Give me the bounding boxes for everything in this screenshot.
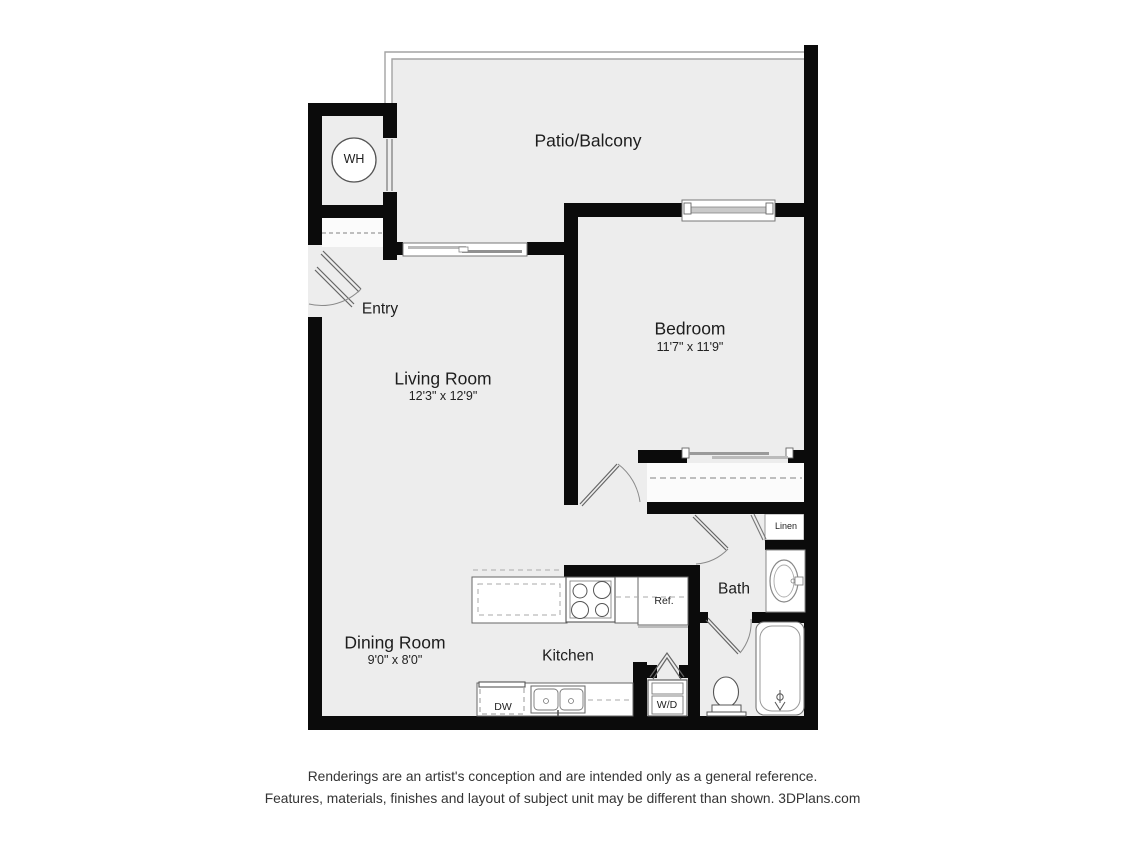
water-heater-label: WH <box>344 153 365 167</box>
dishwasher-label: DW <box>494 702 512 714</box>
bath-label: Bath <box>718 580 750 597</box>
patio-sliding-door <box>403 243 527 256</box>
refrigerator-label: Ref. <box>654 596 673 608</box>
bedroom-window <box>682 200 775 221</box>
disclaimer: Renderings are an artist's conception an… <box>0 766 1125 810</box>
washer-dryer-label: W/D <box>657 700 677 712</box>
bedroom-dims: 11'7" x 11'9" <box>657 341 724 355</box>
floorplan-canvas: Patio/Balcony WH Entry Bedroom 11'7" x 1… <box>0 0 1125 844</box>
patio-label: Patio/Balcony <box>534 131 641 150</box>
bedroom-label: Bedroom <box>654 319 725 338</box>
stove <box>566 577 615 622</box>
disclaimer-line1: Renderings are an artist's conception an… <box>0 766 1125 788</box>
living-room-label: Living Room <box>394 369 491 388</box>
entry-label: Entry <box>362 300 398 317</box>
kitchen-sink <box>531 686 585 716</box>
floorplan-drawing <box>0 0 1125 844</box>
dining-room-label: Dining Room <box>344 633 445 652</box>
living-room-dims: 12'3" x 12'9" <box>409 390 478 404</box>
linen-label: Linen <box>775 522 797 532</box>
kitchen-label: Kitchen <box>542 647 594 664</box>
vanity-sink <box>766 550 805 612</box>
bathtub <box>756 622 804 715</box>
dining-room-dims: 9'0" x 8'0" <box>368 654 423 668</box>
disclaimer-line2: Features, materials, finishes and layout… <box>0 788 1125 810</box>
